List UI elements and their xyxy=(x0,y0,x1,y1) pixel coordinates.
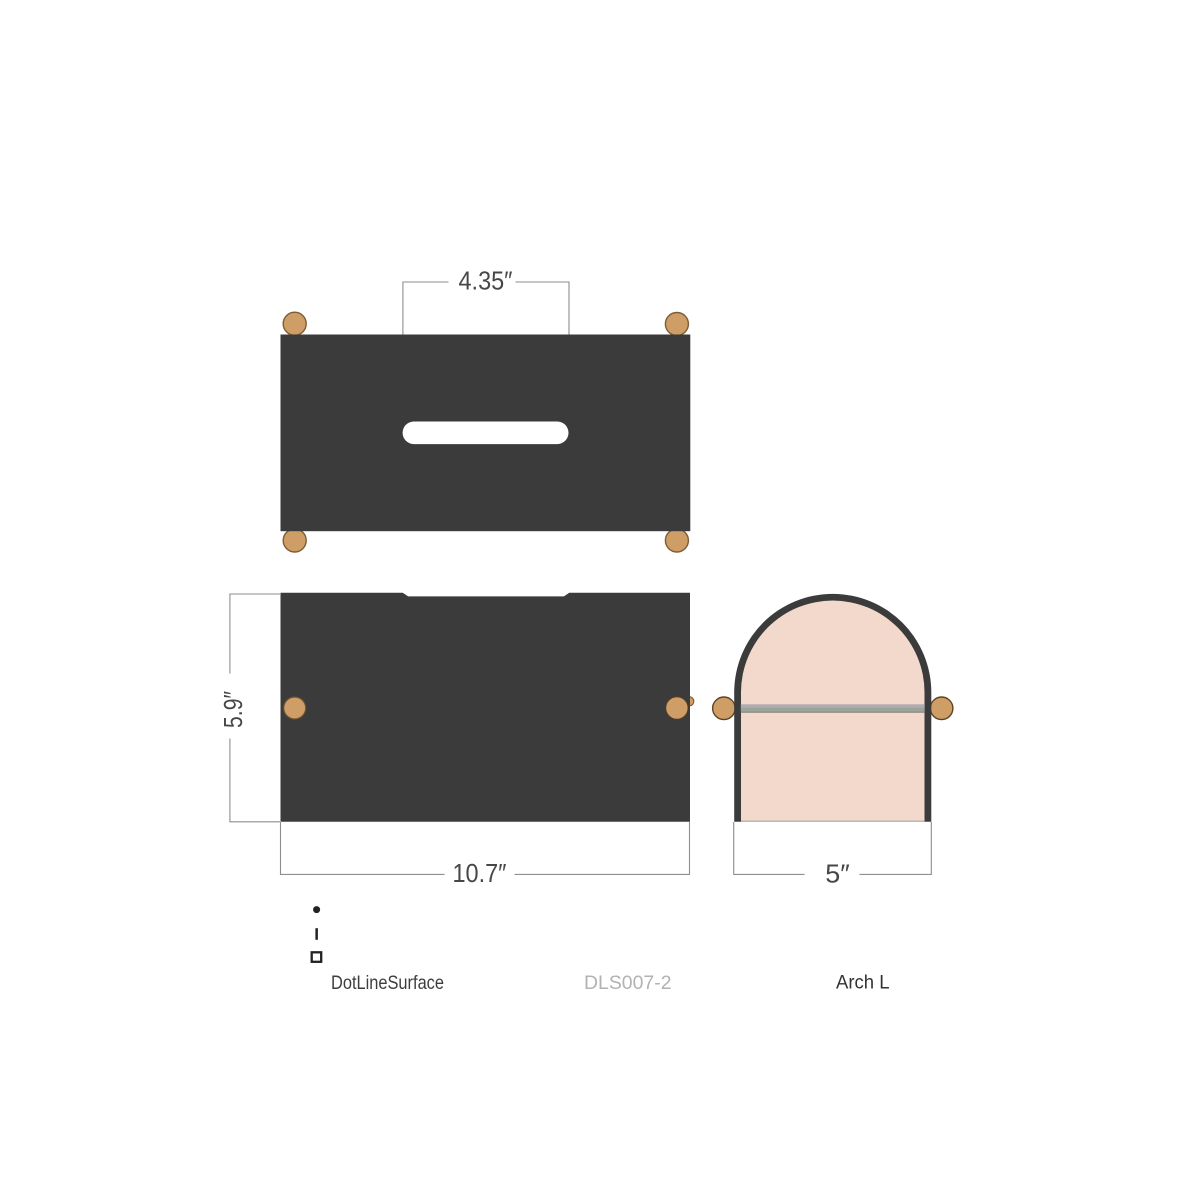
svg-text:4.35″: 4.35″ xyxy=(459,268,513,296)
svg-text:5.9″: 5.9″ xyxy=(220,691,248,728)
svg-text:Arch L: Arch L xyxy=(836,972,890,994)
svg-text:5″: 5″ xyxy=(825,861,850,889)
svg-text:10.7″: 10.7″ xyxy=(453,860,507,888)
svg-text:DotLineSurface: DotLineSurface xyxy=(331,972,444,994)
svg-text:DLS007-2: DLS007-2 xyxy=(584,972,672,994)
